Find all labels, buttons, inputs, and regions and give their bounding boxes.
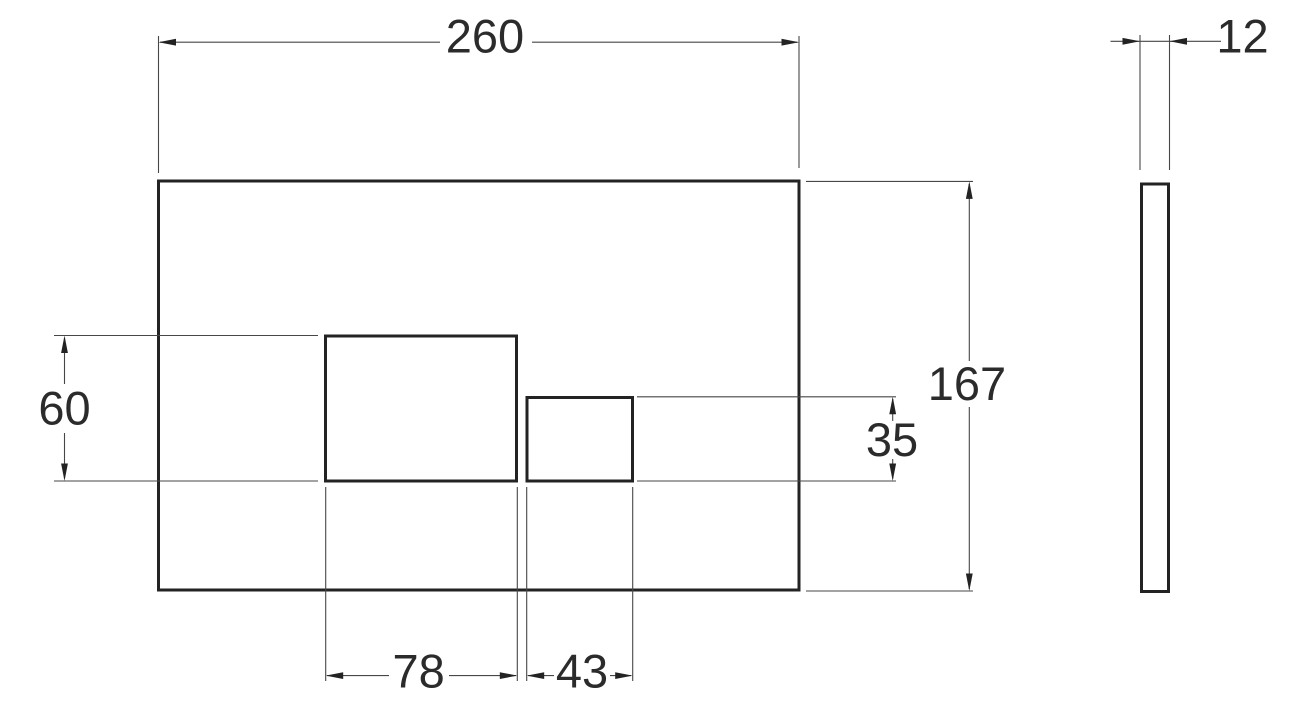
svg-text:60: 60 — [38, 382, 90, 435]
svg-text:35: 35 — [866, 413, 918, 466]
svg-text:78: 78 — [393, 645, 445, 698]
svg-text:167: 167 — [928, 357, 1006, 410]
svg-text:260: 260 — [446, 10, 524, 63]
svg-text:12: 12 — [1216, 9, 1268, 62]
svg-text:43: 43 — [556, 645, 608, 698]
